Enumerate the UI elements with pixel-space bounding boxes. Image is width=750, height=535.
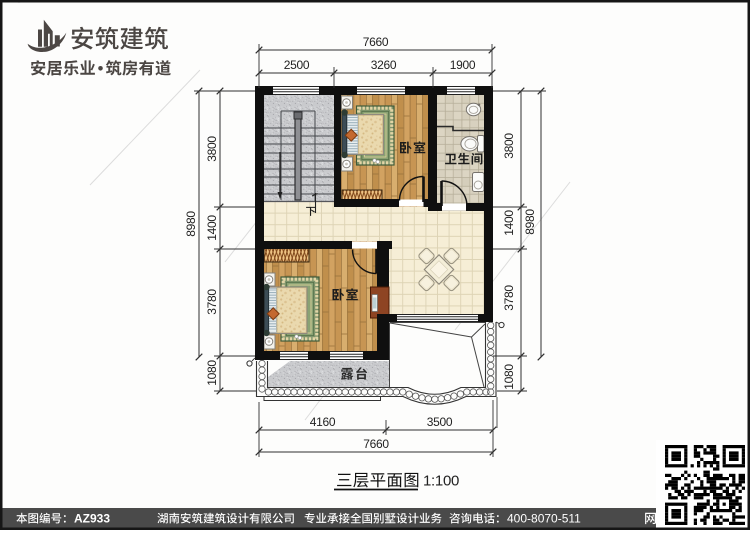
svg-text:4160: 4160 (310, 415, 336, 429)
svg-text:1400: 1400 (205, 215, 219, 241)
svg-text:8980: 8980 (523, 209, 537, 235)
svg-text:3780: 3780 (205, 289, 219, 315)
svg-text:3800: 3800 (502, 133, 516, 159)
svg-text:400-8070-511: 400-8070-511 (507, 512, 581, 526)
svg-text:1900: 1900 (450, 58, 476, 72)
svg-text:1080: 1080 (205, 360, 219, 386)
svg-text:7660: 7660 (363, 35, 389, 49)
svg-text:2500: 2500 (284, 58, 310, 72)
svg-text:1:100: 1:100 (423, 473, 459, 490)
svg-text:7660: 7660 (363, 437, 389, 451)
svg-text:3780: 3780 (502, 285, 516, 311)
svg-text:AZ933: AZ933 (74, 512, 110, 526)
svg-text:3500: 3500 (427, 415, 453, 429)
svg-text:3800: 3800 (205, 136, 219, 162)
svg-text:3260: 3260 (371, 58, 397, 72)
svg-text:1080: 1080 (502, 364, 516, 390)
svg-text:8980: 8980 (184, 211, 198, 237)
svg-text:1400: 1400 (502, 210, 516, 236)
